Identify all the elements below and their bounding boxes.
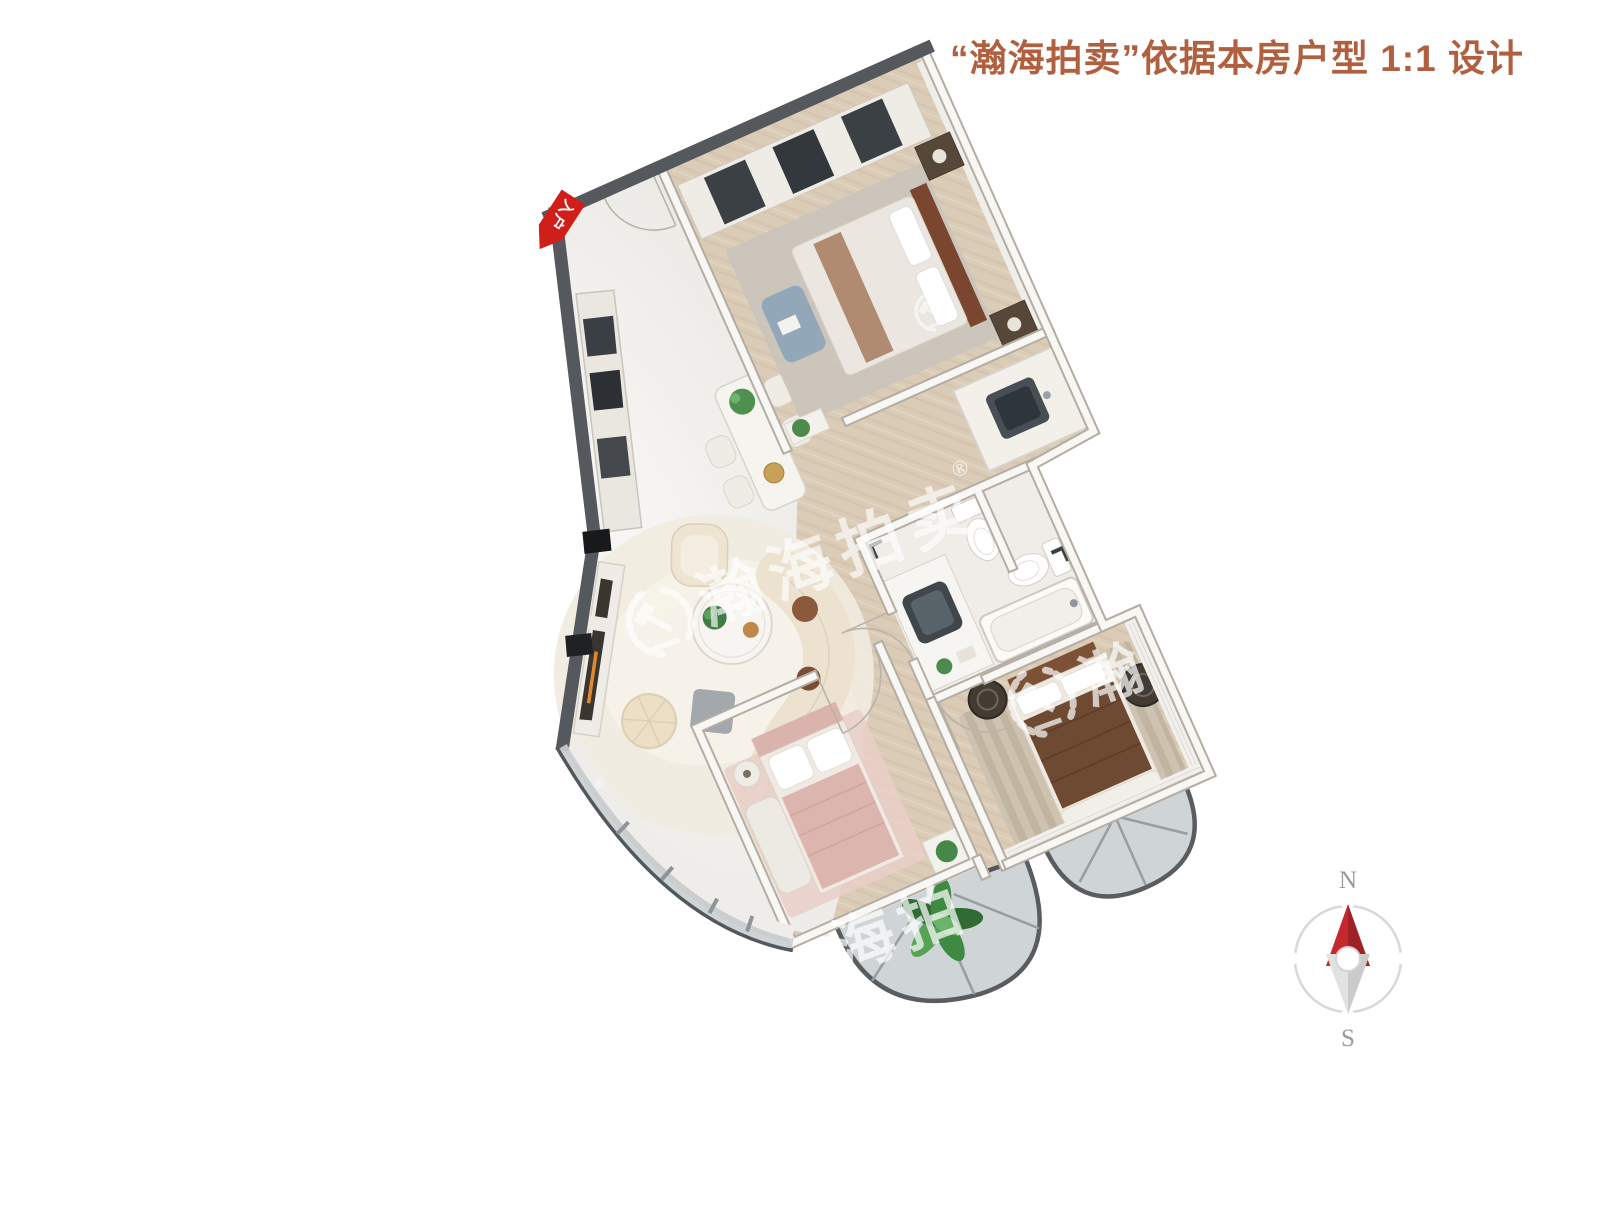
compass-south-label: S (1341, 1025, 1355, 1050)
compass-north-label: N (1339, 867, 1357, 894)
compass: N S (1288, 860, 1408, 1050)
registered-mark-small: ® (594, 776, 605, 792)
compass-hub (1336, 947, 1360, 971)
